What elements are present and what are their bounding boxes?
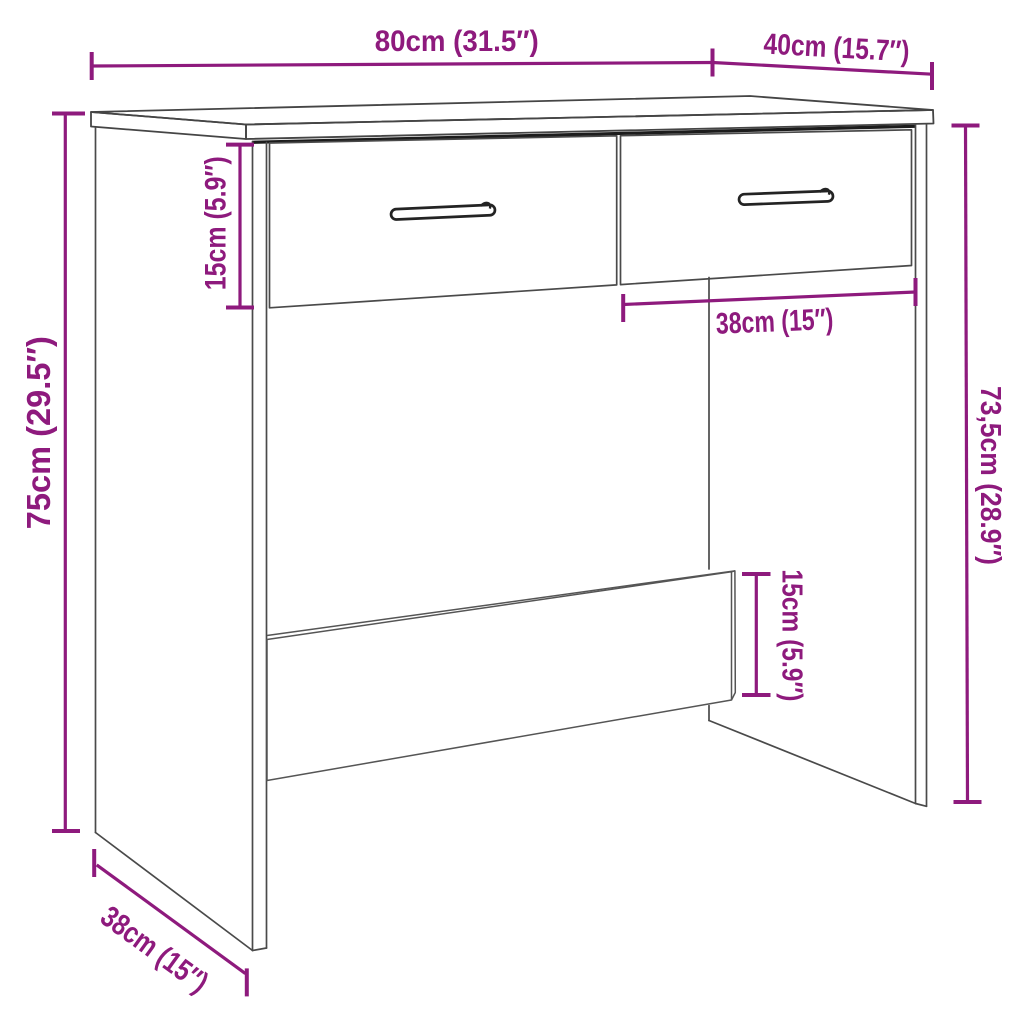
svg-text:73,5cm (28.9″): 73,5cm (28.9″) [974,386,1006,565]
svg-text:15cm (5.9″): 15cm (5.9″) [199,156,232,290]
svg-text:38cm (15″): 38cm (15″) [715,303,834,341]
svg-text:15cm (5.9″): 15cm (5.9″) [776,569,808,701]
svg-text:75cm (29.5″): 75cm (29.5″) [20,336,57,529]
svg-text:80cm (31.5″): 80cm (31.5″) [375,25,539,58]
